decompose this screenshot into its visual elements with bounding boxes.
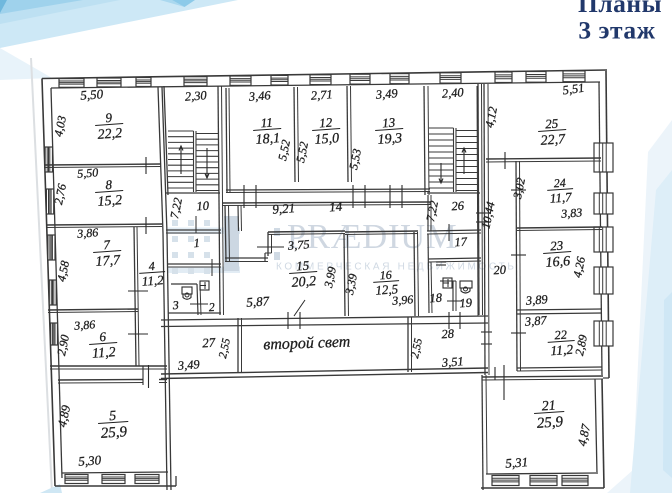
svg-text:11,2: 11,2 <box>550 342 574 359</box>
svg-text:3,49: 3,49 <box>176 357 201 373</box>
svg-text:3,96: 3,96 <box>391 292 414 308</box>
svg-text:9,21: 9,21 <box>272 200 296 217</box>
svg-text:3,51: 3,51 <box>440 354 464 370</box>
svg-text:23: 23 <box>550 238 565 254</box>
svg-text:13: 13 <box>382 115 397 131</box>
svg-text:14: 14 <box>329 199 344 215</box>
svg-text:5,30: 5,30 <box>78 452 102 469</box>
svg-text:25,9: 25,9 <box>536 414 564 432</box>
svg-text:15,2: 15,2 <box>97 193 122 210</box>
svg-text:20,2: 20,2 <box>291 274 316 291</box>
svg-text:5,50: 5,50 <box>77 165 99 180</box>
svg-text:26: 26 <box>451 199 465 214</box>
svg-text:24: 24 <box>553 176 566 191</box>
svg-text:1: 1 <box>193 236 200 250</box>
svg-text:3: 3 <box>171 298 179 312</box>
svg-text:28: 28 <box>441 327 455 342</box>
svg-text:3,87: 3,87 <box>523 313 548 329</box>
svg-text:второй свет: второй свет <box>263 333 351 353</box>
svg-text:3,75: 3,75 <box>286 237 310 253</box>
svg-text:22,7: 22,7 <box>540 132 566 149</box>
svg-text:3,86: 3,86 <box>73 317 96 333</box>
svg-text:15: 15 <box>296 258 311 274</box>
svg-text:3,49: 3,49 <box>374 86 399 102</box>
svg-text:25,9: 25,9 <box>100 424 128 442</box>
svg-text:20: 20 <box>493 263 507 278</box>
svg-text:2: 2 <box>208 300 215 314</box>
svg-text:5,50: 5,50 <box>80 86 104 103</box>
svg-text:22,2: 22,2 <box>97 126 122 143</box>
svg-text:11,7: 11,7 <box>549 189 572 206</box>
svg-text:15,0: 15,0 <box>314 131 339 148</box>
svg-text:КОММЕРЧЕСКАЯ НЕДВИЖИМОСТЬ: КОММЕРЧЕСКАЯ НЕДВИЖИМОСТЬ <box>276 262 517 273</box>
svg-text:5,87: 5,87 <box>246 293 270 310</box>
svg-text:16,6: 16,6 <box>545 254 570 271</box>
svg-text:2,30: 2,30 <box>184 88 208 104</box>
svg-text:3,86: 3,86 <box>76 225 99 241</box>
svg-text:2,40: 2,40 <box>441 85 465 101</box>
svg-text:18: 18 <box>429 291 443 306</box>
svg-text:17,7: 17,7 <box>95 253 121 270</box>
svg-text:27: 27 <box>202 335 217 351</box>
svg-text:3,89: 3,89 <box>524 292 549 308</box>
svg-text:2,71: 2,71 <box>310 87 333 102</box>
svg-text:11: 11 <box>260 115 273 131</box>
svg-text:3,83: 3,83 <box>560 205 583 221</box>
svg-text:3,46: 3,46 <box>247 88 272 104</box>
svg-text:4: 4 <box>148 259 155 273</box>
svg-text:18,1: 18,1 <box>255 131 280 148</box>
svg-text:17: 17 <box>454 235 468 250</box>
svg-text:PRÆDIUM: PRÆDIUM <box>287 218 457 256</box>
svg-text:12: 12 <box>319 115 334 131</box>
svg-text:19: 19 <box>459 296 473 311</box>
svg-text:5,31: 5,31 <box>505 454 529 471</box>
svg-text:19,3: 19,3 <box>377 131 402 148</box>
svg-text:11,2: 11,2 <box>141 272 164 289</box>
svg-text:22: 22 <box>554 328 567 343</box>
svg-text:3 этаж: 3 этаж <box>578 16 655 45</box>
svg-text:10: 10 <box>196 199 210 214</box>
svg-text:11,2: 11,2 <box>92 345 116 362</box>
svg-text:25: 25 <box>545 116 560 132</box>
svg-text:16: 16 <box>379 268 392 283</box>
